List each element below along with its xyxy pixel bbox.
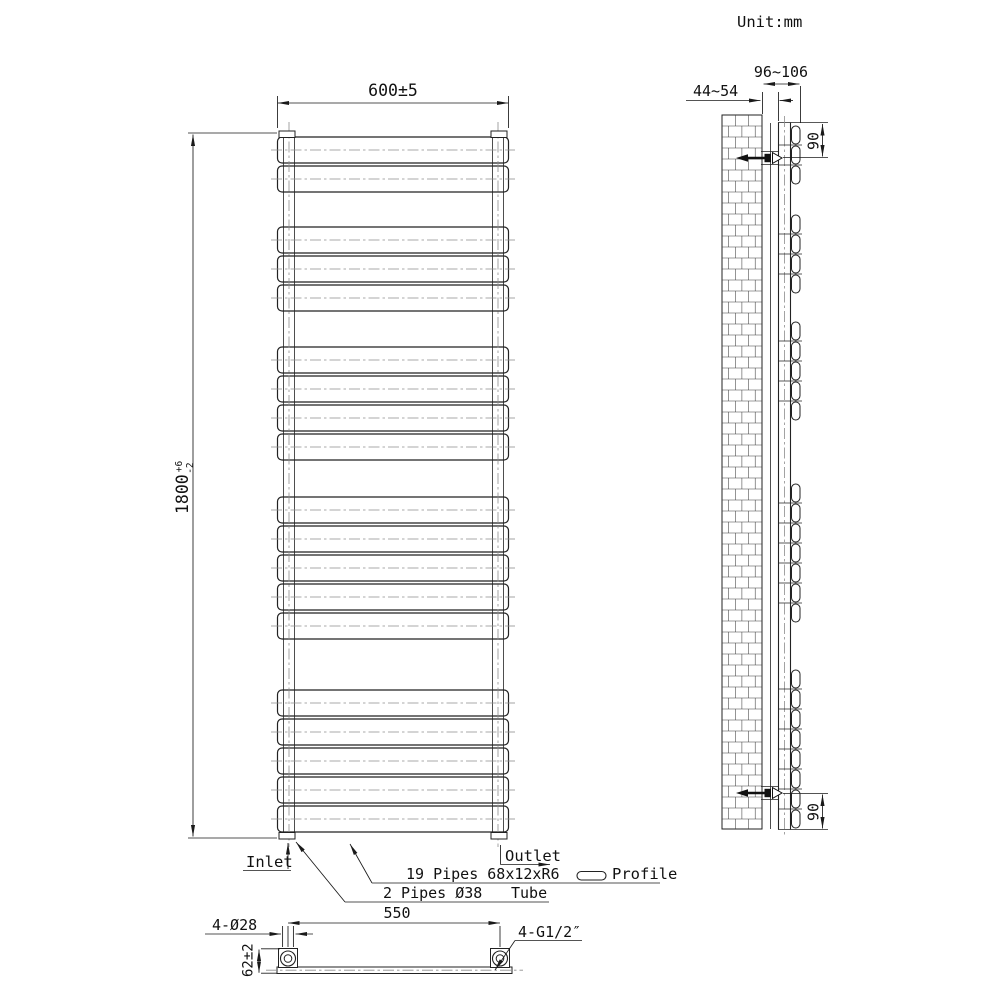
side-panel-profile <box>792 524 801 542</box>
side-panel-profile <box>792 810 801 828</box>
dim-holes-label: 4-Ø28 <box>212 916 257 934</box>
right-connection-boss <box>491 949 510 968</box>
dim-bottom-offset-label: 90 <box>805 803 823 821</box>
side-panel-profile <box>792 750 801 768</box>
outlet-label: Outlet <box>505 847 561 865</box>
dim-total-depth-label: 96~106 <box>754 63 808 81</box>
side-panel-profile <box>792 604 801 622</box>
side-panel-profile <box>792 484 801 502</box>
side-panel-profile <box>792 235 801 253</box>
towel-radiator-drawing: 600±5 1800+6-2 <box>0 0 1000 1000</box>
side-panel-profile <box>792 730 801 748</box>
side-panel-profile <box>792 342 801 360</box>
technical-drawing-page: 600±5 1800+6-2 <box>0 0 1000 1000</box>
outlet-callout: Outlet <box>501 845 562 865</box>
tube-spec-label: 2 Pipes Ø38 <box>383 884 482 902</box>
side-panel-profile <box>792 382 801 400</box>
left-connection-boss <box>279 949 298 968</box>
side-panel-profile <box>792 146 801 164</box>
side-panel-profile <box>792 166 801 184</box>
side-panel-profile <box>792 126 801 144</box>
side-panel-profile <box>792 564 801 582</box>
side-panel-profile <box>792 790 801 808</box>
unit-label: Unit:mm <box>737 13 802 31</box>
dim-top-offset-label: 90 <box>805 132 823 150</box>
side-panel-profile <box>792 504 801 522</box>
dim-pipe-centres-label: 550 <box>383 904 410 922</box>
dim-thread-label: 4-G1/2″ <box>518 923 581 941</box>
side-panel-profile <box>792 670 801 688</box>
inlet-label: Inlet <box>246 853 293 871</box>
tube-label: Tube <box>511 884 547 902</box>
profile-label: Profile <box>612 865 677 883</box>
side-panel-profile <box>792 710 801 728</box>
side-panel-profile <box>792 255 801 273</box>
side-panel-profile <box>792 584 801 602</box>
panel-spec-label: 19 Pipes 68x12xR6 <box>406 865 560 883</box>
profile-shape-icon <box>577 872 606 881</box>
side-panel-profile <box>792 362 801 380</box>
side-panel-profile <box>792 690 801 708</box>
side-panel-profile <box>792 275 801 293</box>
dim-width-label: 600±5 <box>368 81 418 100</box>
side-panel-profile <box>792 770 801 788</box>
side-panel-profile <box>792 402 801 420</box>
side-panel-profile <box>792 322 801 340</box>
side-panel-profile <box>792 215 801 233</box>
dim-bracket-depth-label: 44~54 <box>693 82 738 100</box>
side-panel-profile <box>792 544 801 562</box>
dim-connection-height-label: 62±2 <box>241 943 257 977</box>
